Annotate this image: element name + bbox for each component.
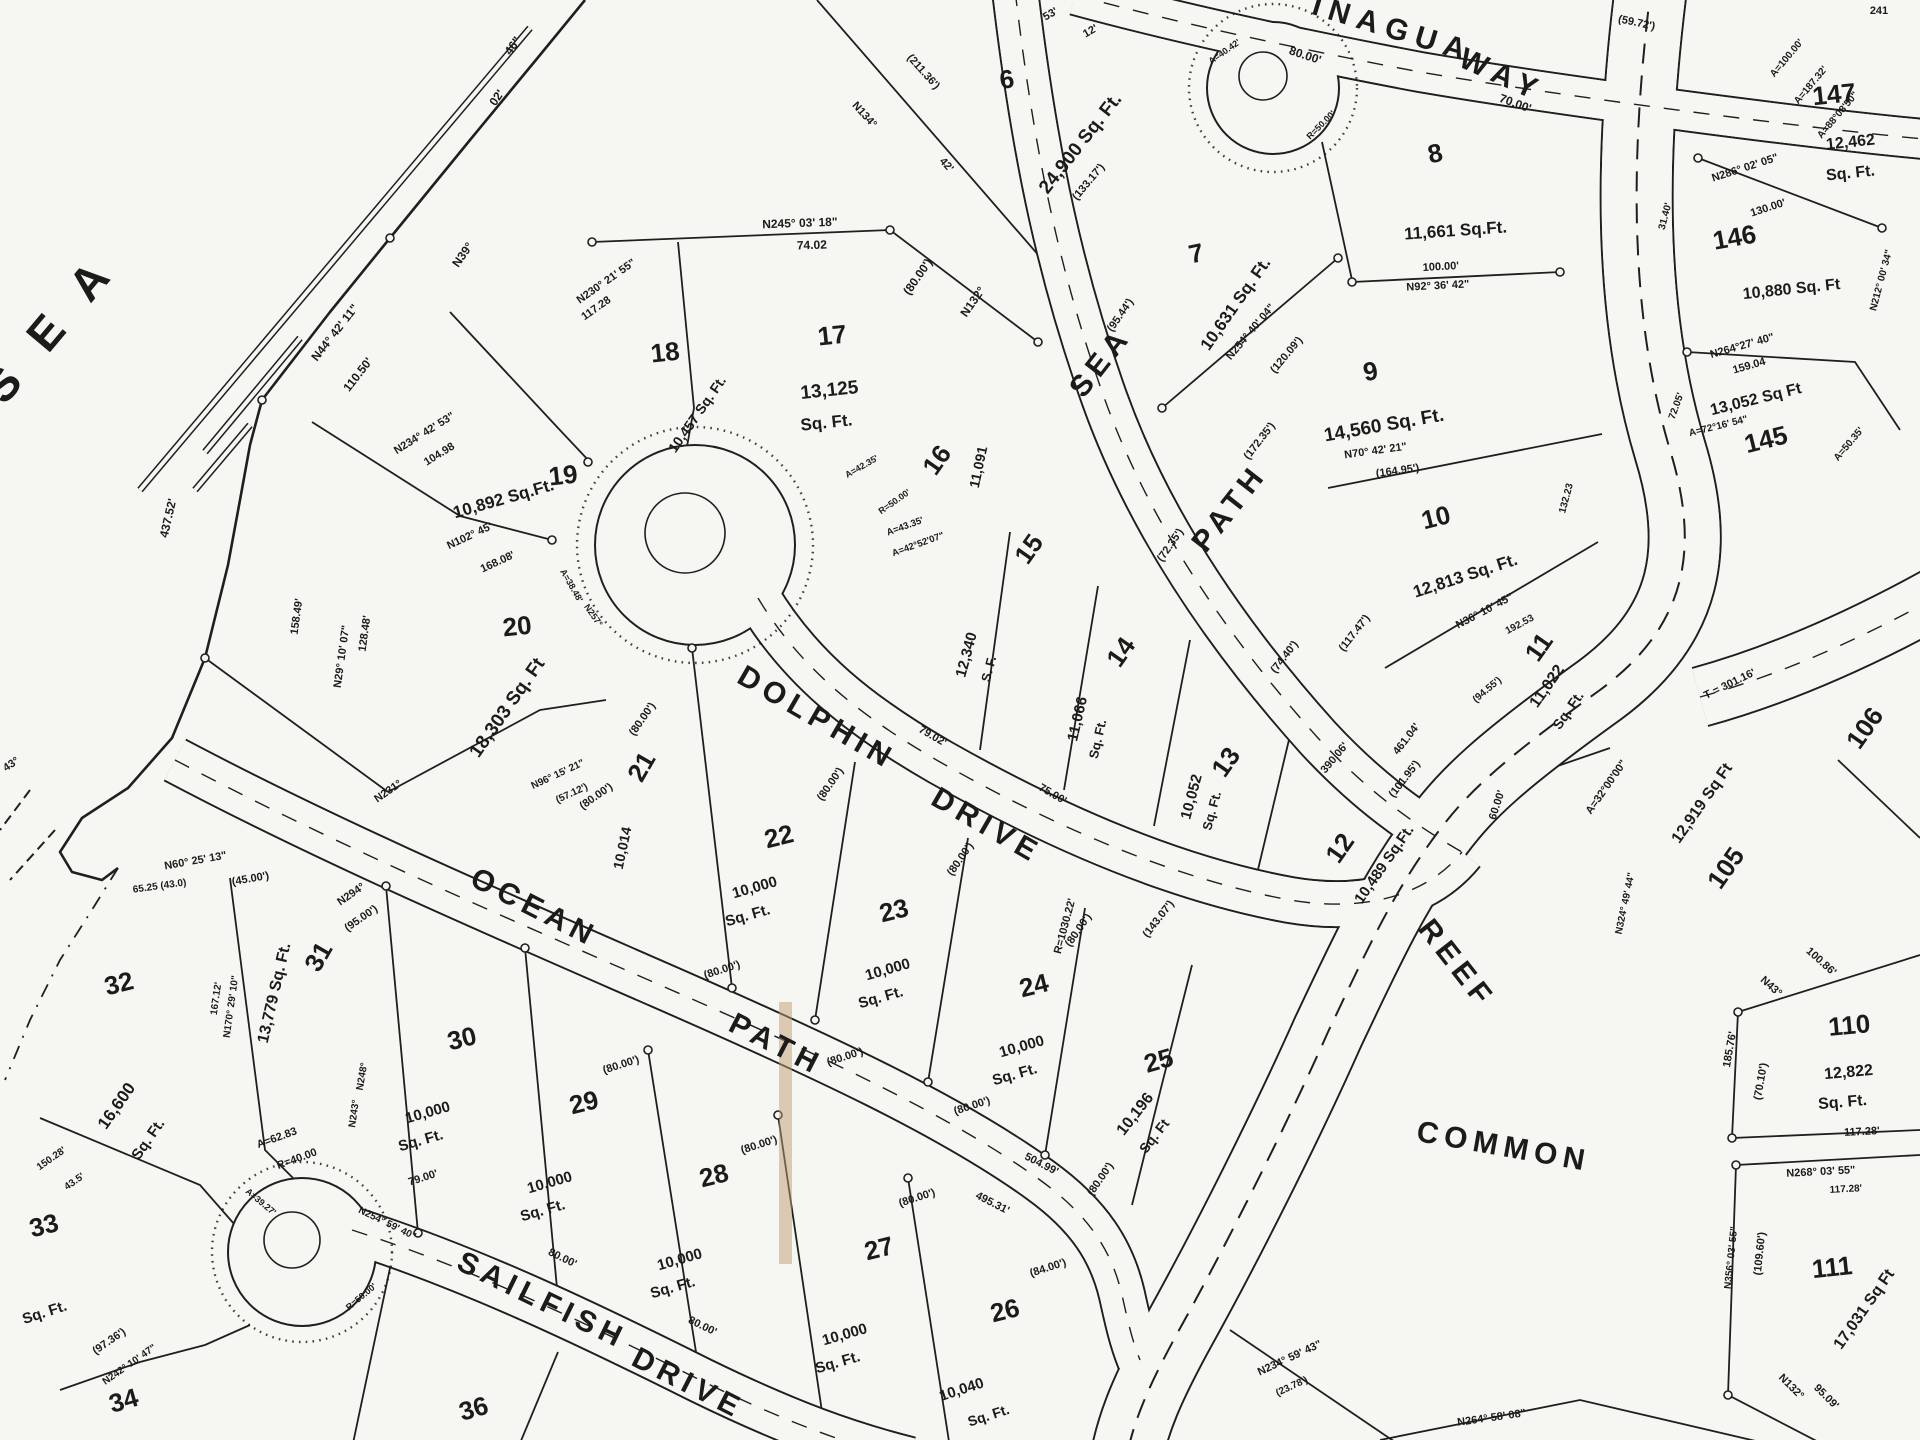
area-label: Sq. Ft. <box>1818 1092 1868 1113</box>
dimension-label: N134° <box>849 100 878 131</box>
area-label: 10,892 Sq.Ft. <box>451 475 556 522</box>
dimension-label: (94.55') <box>1471 675 1504 705</box>
dimension-label: N102° 45' <box>445 520 494 552</box>
lot-boundary <box>1328 434 1602 488</box>
dimension-label: N264° 58' 08" <box>1457 1407 1527 1429</box>
area-label: 10,457 Sq. Ft. <box>665 373 729 455</box>
dimension-label: 74.02 <box>797 237 828 252</box>
vertex-marker <box>1034 338 1042 346</box>
vertex-marker <box>811 1016 819 1024</box>
dimension-label: 12' <box>1081 22 1100 40</box>
street-label: COMMON <box>1414 1115 1593 1178</box>
lot-number: 31 <box>298 936 338 976</box>
area-label: 11,091 <box>966 445 990 490</box>
vertex-marker <box>1334 254 1342 262</box>
vertex-marker <box>1728 1134 1736 1142</box>
lot-boundary <box>450 312 590 462</box>
dimension-label: R=50.00' <box>876 487 912 516</box>
lot-number: 27 <box>861 1230 896 1266</box>
dimension-label: 130.00' <box>1749 197 1788 220</box>
lot-number: 146 <box>1710 219 1758 256</box>
dimension-label: N212° 00' 34" <box>1868 248 1895 312</box>
lot-boundary <box>60 1325 250 1390</box>
lot-number: 33 <box>26 1207 61 1243</box>
vertex-marker <box>1348 278 1356 286</box>
lot-number: 16 <box>916 439 957 480</box>
shore-double-line <box>140 28 530 490</box>
area-label: 13,052 Sq Ft <box>1709 380 1804 419</box>
lot-number: 9 <box>1361 355 1380 387</box>
dimension-label: (80.00') <box>739 1134 779 1157</box>
lot-boundary <box>312 422 552 540</box>
lot-number: 17 <box>816 319 848 352</box>
dimension-label: 95.09' <box>1811 1382 1841 1412</box>
dimension-label: 43.5' <box>62 1171 86 1193</box>
area-label: Sq. Ft. <box>966 1401 1012 1429</box>
vertex-marker <box>688 644 696 652</box>
lot-number: 8 <box>1425 137 1445 169</box>
lot-number: 30 <box>444 1020 479 1056</box>
dimension-label: N44° 42' 11" <box>308 301 361 363</box>
plat-map-screenshot: S E AINAGUAWAYSEAPATHDOLPHINDRIVEOCEANPA… <box>0 0 1920 1440</box>
dimension-label: (80.00') <box>627 700 659 738</box>
area-label: 10,000 <box>997 1032 1046 1061</box>
vertex-marker <box>1694 154 1702 162</box>
dimension-label: (211.36') <box>904 52 942 92</box>
lot-boundary <box>518 1352 558 1440</box>
dimension-label: (80.00') <box>815 765 847 803</box>
dimension-label: (80.00') <box>702 959 742 982</box>
area-label: 10,000 <box>525 1168 574 1197</box>
dimension-label: N29° 10' 07" <box>332 625 353 689</box>
lot-number: 20 <box>501 610 533 643</box>
lot-boundary <box>980 532 1010 750</box>
vertex-marker <box>1683 348 1691 356</box>
dimension-label: N92° 36' 42" <box>1406 278 1470 293</box>
area-label: 10,000 <box>863 955 912 984</box>
area-label: 11,661 Sq.Ft. <box>1404 217 1508 243</box>
area-label: 10,000 <box>820 1320 869 1349</box>
vertex-marker <box>584 458 592 466</box>
dimension-label: 42' <box>937 155 956 174</box>
lot-boundary <box>1728 1395 1830 1440</box>
vertex-marker <box>644 1046 652 1054</box>
vertex-marker <box>886 226 894 234</box>
dimension-label: (133.17') <box>1070 161 1107 202</box>
dimension-label: A=43.35' <box>885 515 925 538</box>
dimension-label: N324° 49' 44" <box>1614 871 1638 935</box>
dimension-label: N234° 59' 43" <box>1256 1338 1324 1378</box>
dimension-label: R=40.00 <box>275 1146 318 1172</box>
dimension-label: (70.10') <box>1752 1062 1770 1101</box>
dimension-label: 128.48' <box>357 614 374 652</box>
dimension-label: (45.00') <box>231 870 270 888</box>
lot-number: 11 <box>1518 627 1558 667</box>
dimension-label: (23.78') <box>1274 1375 1310 1399</box>
plat-map-canvas: S E AINAGUAWAYSEAPATHDOLPHINDRIVEOCEANPA… <box>0 0 1920 1440</box>
dimension-label: N170° 29' 10" <box>222 975 242 1039</box>
dimension-label: (80.00') <box>1085 1160 1117 1198</box>
dimension-label: N245° 03' 18" <box>762 215 838 232</box>
street-label: S E A <box>0 243 127 413</box>
vertex-marker <box>1734 1008 1742 1016</box>
area-label: 14,560 Sq. Ft. <box>1322 405 1445 447</box>
cul-de-sac-island <box>264 1212 320 1268</box>
vertex-marker <box>1732 1161 1740 1169</box>
area-label: Sq. Ft <box>1136 1115 1173 1156</box>
vertex-marker <box>201 654 209 662</box>
dimension-label: N39° <box>449 240 476 270</box>
dimension-label: (95.00') <box>342 903 380 935</box>
vertex-marker <box>924 1078 932 1086</box>
dimension-label: 100.00' <box>1422 260 1459 274</box>
lot-number: 28 <box>696 1157 731 1193</box>
lot-number: 26 <box>987 1292 1022 1328</box>
dimension-label: N132° <box>1776 1372 1806 1402</box>
dimension-label: (80.00') <box>945 840 977 878</box>
vertex-marker <box>1556 268 1564 276</box>
dimension-label: 168.08' <box>479 549 517 575</box>
area-label: Sq. Ft. <box>990 1060 1039 1089</box>
dimension-label: 80.00' <box>686 1314 719 1338</box>
area-label: 18,303 Sq. Ft <box>466 654 550 762</box>
dimension-label: 100.86' <box>1804 945 1839 978</box>
lot-number: 29 <box>566 1084 601 1120</box>
area-label: 12,919 Sq Ft <box>1669 760 1737 847</box>
lot-number: 15 <box>1008 528 1049 569</box>
dimension-label: 158.49' <box>289 597 306 635</box>
dimension-label: N268° 03' 55" <box>1786 1164 1856 1180</box>
lot-number: 105 <box>1701 841 1750 894</box>
dimension-label: 65.25 (43.0) <box>132 877 187 895</box>
dimension-label: 241 <box>1870 5 1888 17</box>
area-label: 10,000 <box>403 1098 452 1127</box>
area-label: S. F. <box>978 654 999 683</box>
lot-number: 145 <box>1741 419 1790 459</box>
vertex-marker <box>588 238 596 246</box>
dimension-label: A=50.35' <box>1832 425 1866 463</box>
area-label: 13,125 <box>799 377 859 404</box>
lot-boundary <box>40 1118 235 1225</box>
dimension-label: (143.07') <box>1140 898 1176 940</box>
dimension-label: 150.28' <box>35 1145 68 1173</box>
lot-boundary <box>525 948 557 1288</box>
dimension-label: 53' <box>1041 5 1060 23</box>
dimension-label: N286° 02' 05" <box>1710 152 1779 185</box>
dimension-label: 495.31' <box>973 1190 1011 1217</box>
dimension-label: N43° <box>1758 974 1784 999</box>
area-label: 12,340 <box>953 630 981 679</box>
dimension-label: (84.00') <box>1028 1257 1068 1280</box>
dimension-label: 167.12' <box>209 982 224 1016</box>
shore-tick <box>0 790 30 830</box>
cul-de-sac-island <box>645 493 725 573</box>
vertex-marker <box>521 944 529 952</box>
vertex-marker <box>382 882 390 890</box>
area-label: Sq. Ft. <box>1199 790 1224 832</box>
dimension-label: (80.00') <box>897 1187 937 1210</box>
lot-boundary <box>1838 760 1920 838</box>
dimension-label: (109.60') <box>1752 1231 1769 1276</box>
area-label: Sq. Ft. <box>1825 163 1875 185</box>
dimension-label: 132.23 <box>1557 482 1576 515</box>
dimension-label: 159.04 <box>1731 355 1767 376</box>
vertex-marker <box>386 234 394 242</box>
vertex-marker <box>548 536 556 544</box>
dimension-label: A=100.00' <box>1768 37 1806 79</box>
dimension-label: 437.52' <box>157 497 180 539</box>
lot-boundary <box>928 838 968 1082</box>
lot-boundary <box>1380 1400 1760 1440</box>
shore-tick <box>10 830 55 880</box>
dimension-label: (172.35') <box>1241 420 1277 462</box>
lot-number: 23 <box>876 892 911 928</box>
dimension-label: N242° 10' 47" <box>101 1342 159 1387</box>
dimension-label: (120.09') <box>1268 334 1305 375</box>
area-label: 10,880 Sq. Ft <box>1742 276 1842 303</box>
dimension-label: (117.47') <box>1337 612 1373 654</box>
lot-boundary <box>1132 965 1192 1205</box>
dimension-label: A=38.48' <box>558 567 585 604</box>
lot-number: 21 <box>621 746 661 786</box>
dimension-label: N356° 03' 55" <box>1723 1226 1741 1290</box>
dimension-label: A=42.35' <box>843 453 880 480</box>
vertex-marker <box>1724 1391 1732 1399</box>
area-label: 11,066 <box>1064 695 1091 743</box>
dimension-label: (164.95') <box>1375 462 1420 480</box>
area-label: Sq. Ft. <box>723 901 772 930</box>
dimension-label: A=32°00'00" <box>1583 758 1629 817</box>
lot-boundary <box>1732 1130 1920 1138</box>
dimension-label: 104.98 <box>422 440 457 468</box>
dimension-label: 110.50' <box>340 355 375 394</box>
lot-number: 111 <box>1810 1250 1853 1284</box>
lot-number: 22 <box>761 818 796 854</box>
dimension-label: 43° <box>1 755 22 774</box>
vertex-marker <box>728 984 736 992</box>
dimension-label: (80.00') <box>601 1054 641 1077</box>
lot-number: 10 <box>1418 499 1453 535</box>
lot-boundary <box>692 648 732 988</box>
area-label: Sq. Ft. <box>20 1298 69 1328</box>
dimension-label: N243° <box>347 1099 362 1128</box>
dimension-label: N70° 42' 21" <box>1344 441 1408 462</box>
lot-number: 7 <box>1186 237 1206 269</box>
area-label: 10,000 <box>730 873 779 902</box>
lot-number: 106 <box>1840 701 1889 754</box>
area-label: 10,014 <box>610 825 635 870</box>
area-label: 13,779 Sq. Ft. <box>255 941 295 1044</box>
dimension-label: (80.00') <box>900 256 935 298</box>
area-label: 16,600 <box>94 1079 139 1132</box>
dimension-label: (97.36') <box>90 1326 128 1358</box>
vertex-marker <box>258 396 266 404</box>
vertex-marker <box>904 1174 912 1182</box>
dimension-label: N294° <box>335 881 367 908</box>
street-label: REEF <box>1411 913 1501 1015</box>
lot-number: 13 <box>1205 741 1246 782</box>
dimension-label: N257° <box>582 602 605 629</box>
area-label: Sq. Ft. <box>856 983 905 1012</box>
dimension-label: 117.28' <box>1829 1183 1862 1196</box>
dimension-label: 02' <box>486 87 507 108</box>
lot-number: 14 <box>1100 631 1141 672</box>
area-label: 10,631 Sq. Ft. <box>1197 254 1275 354</box>
lot-number: 34 <box>105 1382 142 1419</box>
vertex-marker <box>1878 224 1886 232</box>
coastline <box>60 0 585 880</box>
lot-number: 36 <box>455 1390 491 1427</box>
dimension-label: 80.00' <box>546 1246 579 1270</box>
dimension-label: N60° 25' 13" <box>163 850 227 873</box>
area-label: 10,052 <box>1178 772 1206 821</box>
area-label: Sq. Ft. <box>518 1196 567 1225</box>
area-label: Sq. Ft. <box>1086 718 1110 760</box>
vertex-marker <box>1158 404 1166 412</box>
area-label: 10,040 <box>937 1375 986 1405</box>
street-label: PATH <box>1185 458 1273 558</box>
area-label: Sq. Ft. <box>648 1273 697 1302</box>
cul-de-sac-island <box>1239 52 1287 100</box>
dimension-label: 117.28' <box>1844 1125 1881 1139</box>
dimension-label: N248° <box>355 1062 371 1091</box>
lot-boundary <box>1064 586 1098 790</box>
lot-boundary <box>1736 1155 1920 1165</box>
area-label: 12,822 <box>1823 1062 1873 1083</box>
lot-boundary <box>648 1050 696 1352</box>
dimension-label: 461.04' <box>1391 721 1423 757</box>
area-label: Sq. Ft. <box>813 1348 862 1377</box>
area-label: Sq. Ft. <box>800 410 854 434</box>
area-label: Sq. Ft. <box>128 1116 168 1163</box>
lot-number: 110 <box>1827 1008 1871 1042</box>
lot-number: 18 <box>649 336 681 369</box>
lot-boundary <box>1732 1012 1738 1138</box>
lot-number: 32 <box>101 965 136 1001</box>
lot-number: 12 <box>1319 827 1360 868</box>
area-label: Sq. Ft. <box>396 1126 445 1155</box>
lot-number: 24 <box>1016 967 1052 1003</box>
dimension-label: N231° <box>372 778 404 805</box>
